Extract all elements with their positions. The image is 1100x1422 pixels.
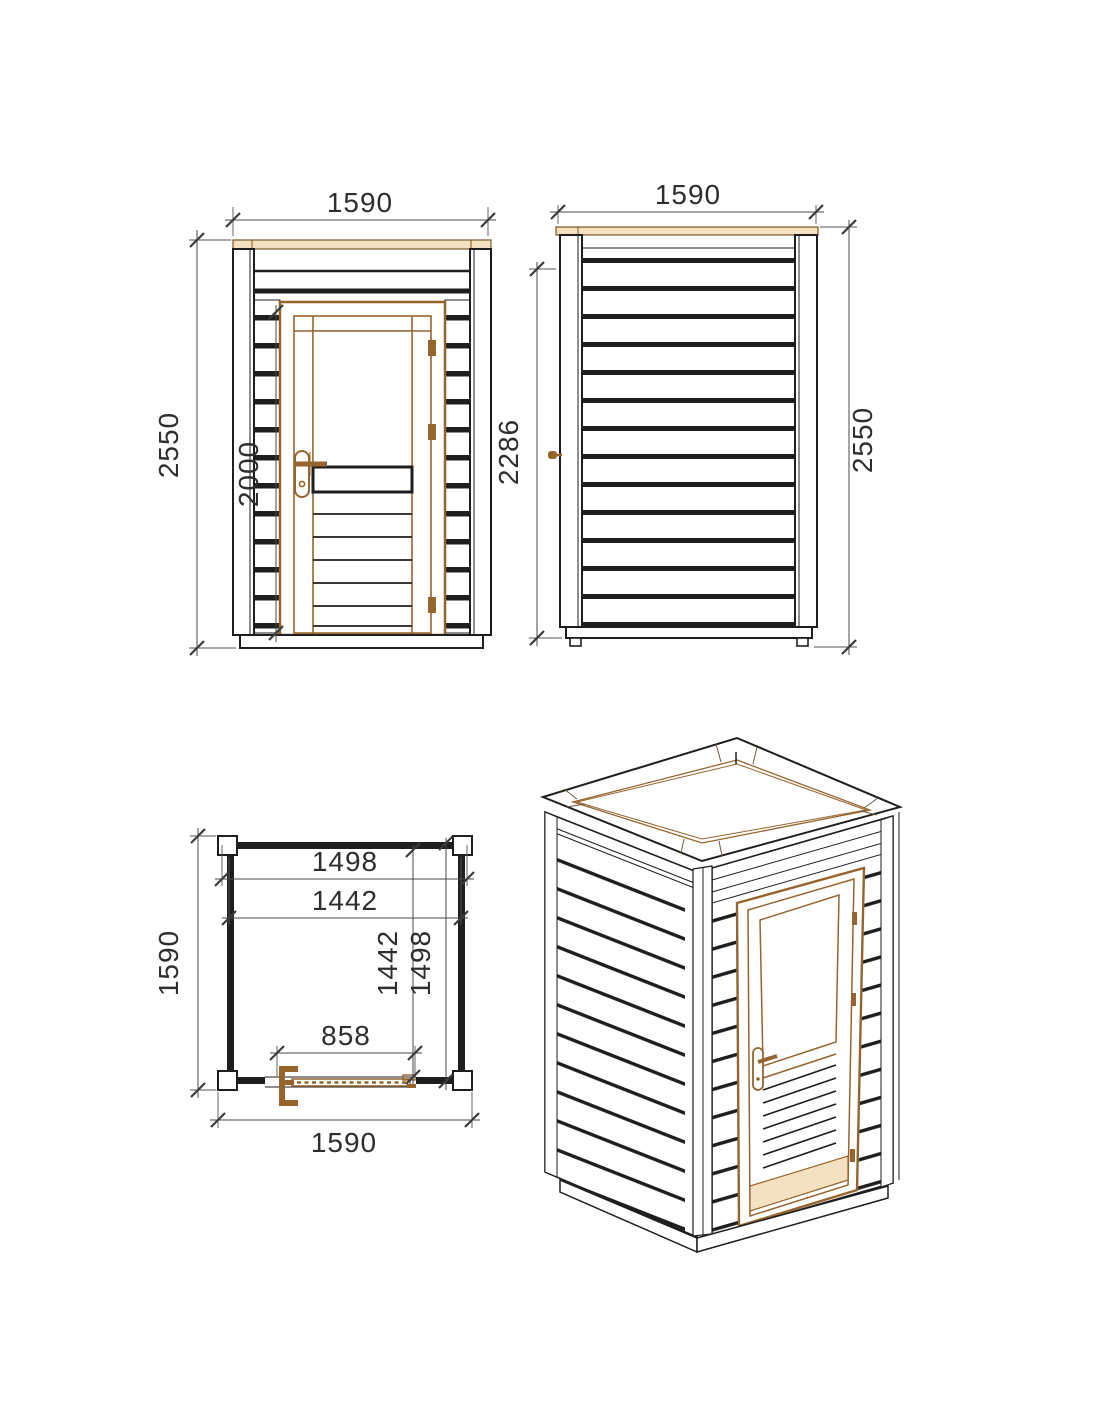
- side-siding-slats: [582, 248, 795, 627]
- side-left-post: [560, 235, 582, 627]
- plan-corner-post: [218, 836, 237, 855]
- front-height-dimension: 2550: [153, 412, 184, 478]
- plan-roof-width-dimension: 1498: [312, 846, 378, 877]
- floor-plan-view: 1498 1442 1442 1498 858 1590 1590: [153, 828, 480, 1158]
- iso-door-hinge: [850, 1149, 855, 1162]
- plan-roof-depth-dimension: 1498: [405, 930, 436, 996]
- door-hinge: [428, 597, 436, 613]
- plan-side-depth-dimension: 1590: [153, 930, 184, 996]
- drawing-canvas: 1590 2550 2000 1590: [0, 0, 1100, 1422]
- plan-corner-post: [453, 1071, 472, 1090]
- iso-right-siding-slats: [712, 898, 739, 1233]
- front-width-dimension: 1590: [327, 187, 393, 218]
- plan-width-dimension: 1590: [311, 1127, 377, 1158]
- plan-bottom-wall-stub: [237, 1077, 265, 1084]
- door-hinge: [428, 340, 436, 356]
- iso-door-hinge: [852, 912, 857, 925]
- front-roof-beam: [233, 240, 491, 249]
- door-slat-thick: [313, 467, 412, 492]
- plan-corner-post: [453, 836, 472, 855]
- plan-corner-post: [218, 1071, 237, 1090]
- side-base-foot: [570, 638, 581, 646]
- plan-inner-depth-dimension: 1442: [372, 930, 403, 996]
- front-right-post: [470, 249, 491, 635]
- door-hinge: [428, 424, 436, 440]
- door-window: [313, 331, 412, 467]
- side-base-plinth: [566, 627, 812, 638]
- iso-left-edge-trim: [545, 812, 557, 1177]
- iso-right-edge-trim: [881, 816, 893, 1187]
- iso-door-hinge: [851, 993, 856, 1006]
- plan-inner-width-dimension: 1442: [312, 885, 378, 916]
- plan-door-width-dimension: 858: [321, 1020, 371, 1051]
- door-height-dimension: 2000: [233, 441, 264, 507]
- iso-door-window: [760, 895, 839, 1066]
- plan-door-latch: [407, 1084, 416, 1088]
- iso-left-siding-slats: [557, 836, 685, 1232]
- plan-door: [265, 1066, 416, 1106]
- technical-drawing: 1590 2550 2000 1590: [0, 0, 1100, 1422]
- side-width-dimension: 1590: [655, 179, 721, 210]
- side-height-dimension: 2550: [847, 407, 878, 473]
- side-base-foot: [797, 638, 808, 646]
- front-right-siding-slats: [445, 300, 470, 633]
- perspective-3d-view: [543, 738, 900, 1252]
- plan-right-wall: [458, 855, 465, 1071]
- front-elevation-view: 1590 2550 2000: [153, 187, 496, 656]
- iso-door: [737, 868, 864, 1226]
- plan-left-wall: [227, 855, 234, 1071]
- side-elevation-view: 1590 2286 2550: [493, 179, 878, 655]
- side-right-post: [795, 235, 817, 627]
- side-roof-beam: [556, 227, 818, 235]
- side-wall-height-dimension: 2286: [493, 419, 524, 485]
